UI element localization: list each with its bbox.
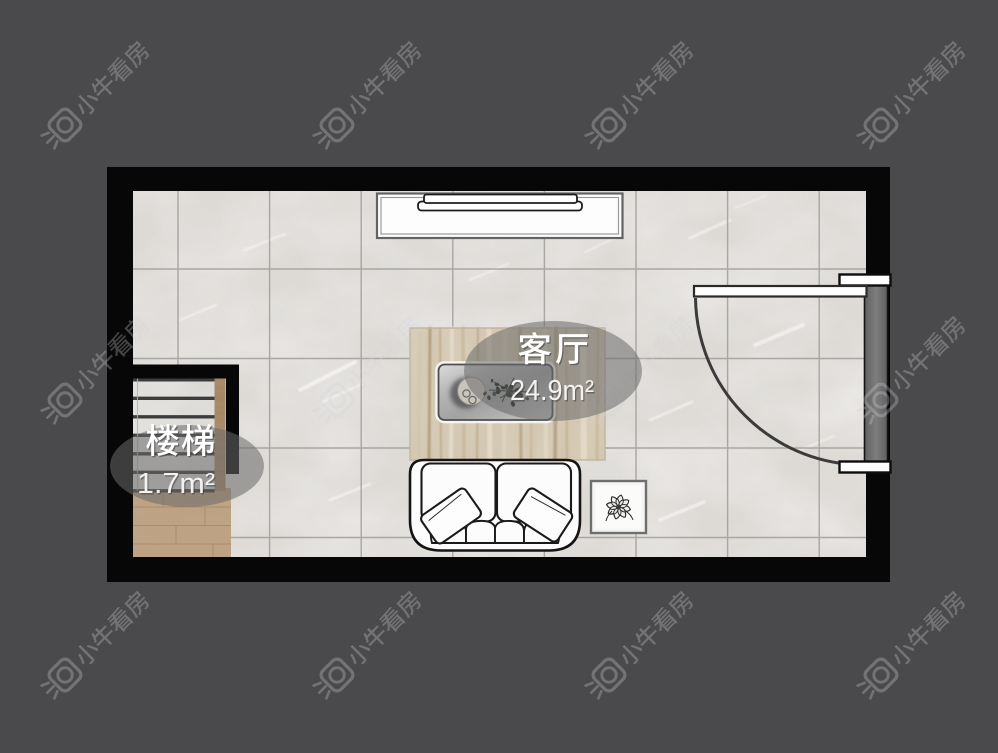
svg-text:24.9m²: 24.9m² [510, 375, 594, 407]
svg-text:1.7m²: 1.7m² [137, 468, 215, 500]
